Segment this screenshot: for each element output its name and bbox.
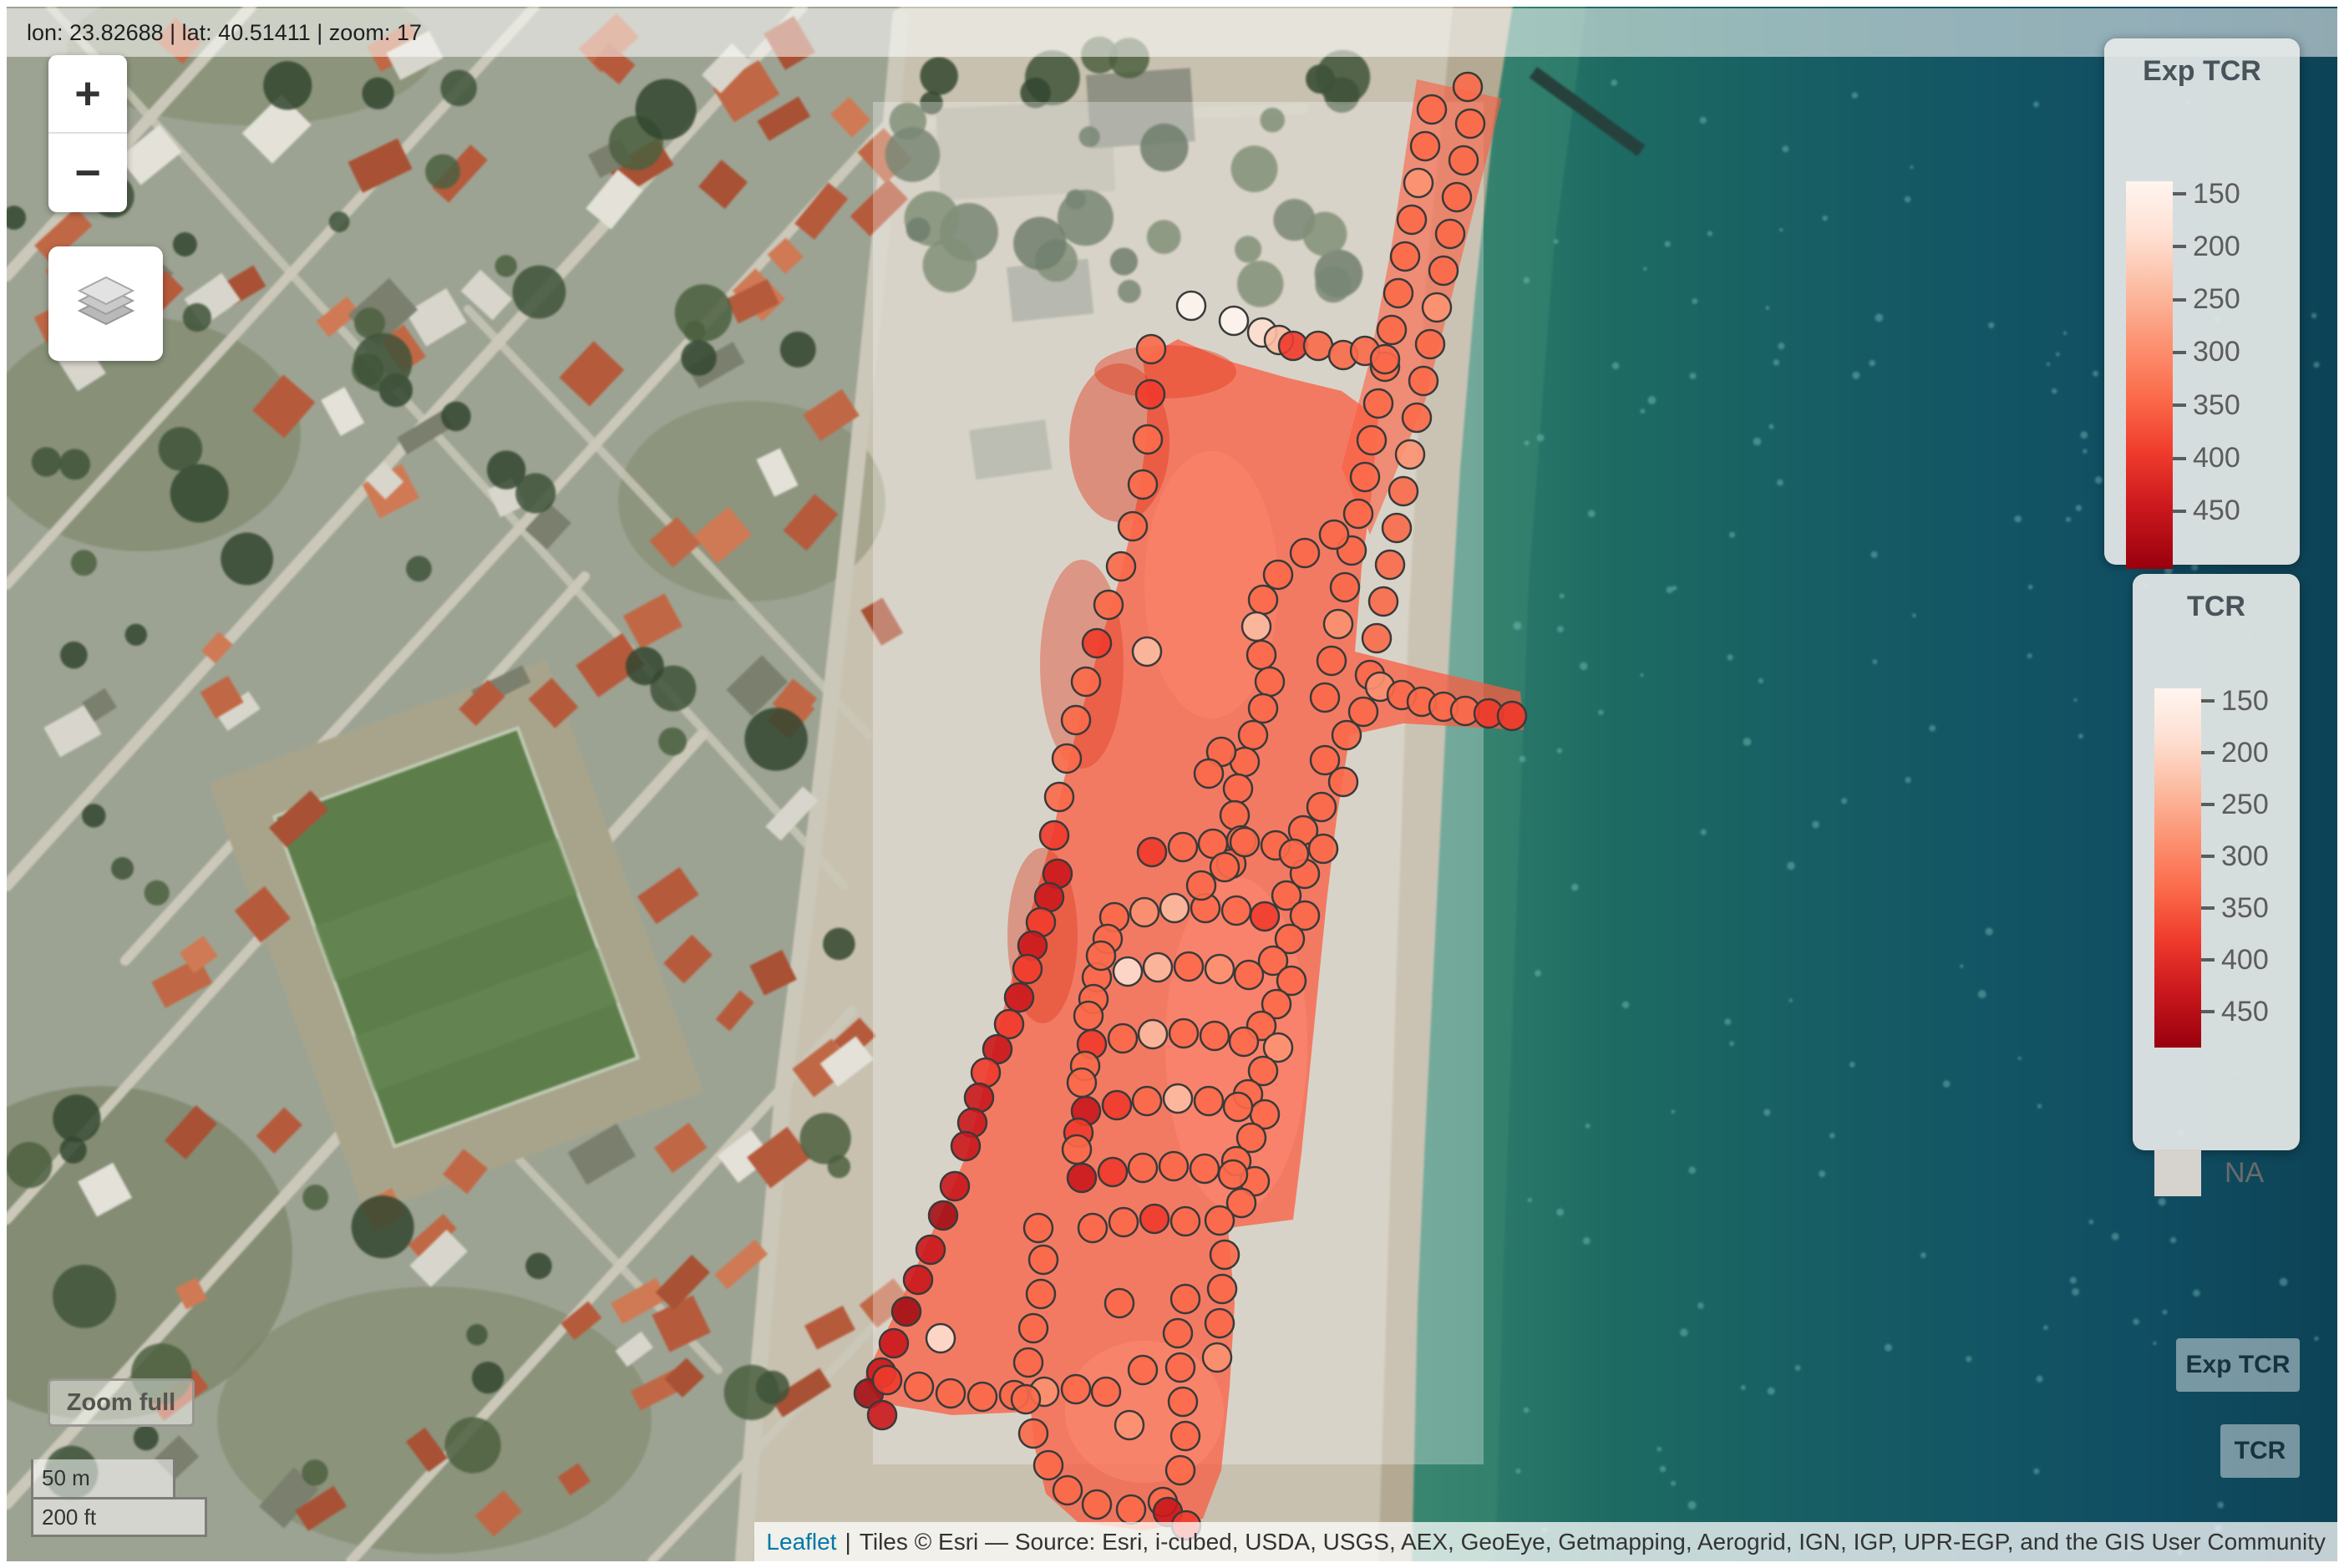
data-point-marker[interactable] [1171, 1207, 1200, 1236]
attribution-separator: | [845, 1529, 851, 1555]
data-point-marker[interactable] [1062, 706, 1090, 734]
data-point-marker[interactable] [1062, 1375, 1090, 1403]
data-point-marker[interactable] [1280, 840, 1308, 868]
data-point-marker[interactable] [1249, 586, 1277, 614]
data-point-marker[interactable] [1103, 1091, 1131, 1119]
data-point-marker[interactable] [1138, 838, 1166, 866]
data-point-marker[interactable] [1087, 941, 1115, 970]
data-point-marker[interactable] [1139, 1020, 1167, 1048]
data-point-marker[interactable] [1027, 1280, 1055, 1308]
data-point-marker[interactable] [1195, 759, 1223, 788]
data-point-marker[interactable] [1013, 955, 1042, 983]
data-point-marker[interactable] [1092, 1378, 1120, 1406]
data-point-marker[interactable] [1222, 896, 1251, 925]
data-point-marker[interactable] [904, 1266, 932, 1294]
na-color-swatch [2154, 1149, 2201, 1196]
data-point-marker[interactable] [1404, 169, 1433, 197]
data-point-marker[interactable] [1205, 1309, 1234, 1337]
data-point-marker[interactable] [1362, 624, 1391, 652]
data-point-marker[interactable] [1166, 1456, 1195, 1484]
data-point-marker[interactable] [1114, 957, 1142, 986]
data-point-marker[interactable] [1109, 1208, 1138, 1236]
data-point-marker[interactable] [1389, 477, 1418, 505]
data-point-marker[interactable] [1177, 292, 1205, 320]
legend-exp-tcr: Exp TCR 150200250300350400450 [2104, 38, 2300, 565]
data-point-marker[interactable] [941, 1172, 969, 1200]
data-point-marker[interactable] [1068, 1164, 1096, 1192]
data-point-marker[interactable] [1210, 853, 1239, 881]
data-point-marker[interactable] [1208, 1275, 1236, 1303]
data-point-marker[interactable] [1133, 637, 1161, 666]
data-point-marker[interactable] [1171, 1422, 1200, 1450]
data-point-marker[interactable] [1134, 425, 1162, 454]
data-point-marker[interactable] [1317, 647, 1346, 675]
data-point-marker[interactable] [1371, 345, 1399, 373]
data-point-marker[interactable] [1239, 721, 1267, 749]
data-point-marker[interactable] [1200, 1022, 1229, 1050]
data-point-marker[interactable] [1203, 1343, 1231, 1372]
data-point-marker[interactable] [1256, 667, 1284, 696]
legend-title: Exp TCR [2104, 55, 2300, 88]
zoom-control: + − [48, 55, 127, 212]
data-point-marker[interactable] [892, 1297, 921, 1326]
data-point-marker[interactable] [1034, 1451, 1063, 1479]
data-point-marker[interactable] [1190, 1154, 1219, 1183]
data-point-marker[interactable] [1072, 667, 1100, 696]
data-point-marker[interactable] [880, 1329, 908, 1357]
zoom-in-button[interactable]: + [48, 55, 127, 134]
data-point-marker[interactable] [1159, 1152, 1188, 1180]
data-point-marker[interactable] [1014, 1348, 1043, 1377]
legend-tcr: TCR 150200250300350400450 NA [2133, 574, 2300, 1150]
data-point-marker[interactable] [951, 1132, 980, 1160]
data-point-marker[interactable] [1129, 1154, 1157, 1182]
data-point-marker[interactable] [1083, 629, 1111, 657]
data-point-marker[interactable] [1344, 500, 1372, 528]
zoom-out-button[interactable]: − [48, 134, 127, 212]
data-point-marker[interactable] [868, 1401, 896, 1429]
data-point-marker[interactable] [1119, 512, 1147, 540]
data-point-marker[interactable] [1129, 1356, 1157, 1384]
data-point-marker[interactable] [1418, 95, 1446, 124]
figure-frame: lon: 23.82688 | lat: 40.51411 | zoom: 17… [0, 0, 2344, 1568]
data-point-marker[interactable] [1329, 768, 1357, 796]
data-point-marker[interactable] [1224, 774, 1252, 803]
data-point-marker[interactable] [1053, 1476, 1082, 1505]
data-point-marker[interactable] [1078, 1214, 1107, 1242]
data-point-marker[interactable] [1454, 73, 1482, 101]
data-point-marker[interactable] [1164, 1319, 1192, 1347]
data-point-marker[interactable] [1398, 206, 1426, 234]
layer-toggle-exp-tcr[interactable]: Exp TCR [2176, 1338, 2300, 1392]
data-point-marker[interactable] [1115, 1411, 1144, 1439]
data-point-marker[interactable] [1166, 1353, 1195, 1382]
data-point-marker[interactable] [1364, 389, 1393, 418]
data-point-marker[interactable] [972, 1058, 1000, 1087]
data-point-marker[interactable] [1105, 1289, 1134, 1317]
data-point-marker[interactable] [1012, 1385, 1040, 1413]
layers-icon [73, 274, 140, 334]
data-point-marker[interactable] [1195, 1087, 1223, 1115]
data-point-marker[interactable] [1109, 1024, 1137, 1053]
data-point-marker[interactable] [1307, 793, 1336, 821]
data-point-marker[interactable] [1230, 828, 1259, 856]
data-point-marker[interactable] [1423, 293, 1451, 322]
data-point-marker[interactable] [1098, 1158, 1127, 1186]
data-point-marker[interactable] [1409, 367, 1438, 395]
layer-toggle-label: TCR [2235, 1437, 2286, 1465]
data-point-marker[interactable] [1230, 1028, 1258, 1056]
data-point-marker[interactable] [965, 1083, 993, 1112]
data-point-marker[interactable] [1416, 330, 1444, 358]
data-point-marker[interactable] [1053, 744, 1081, 773]
zoom-full-label: Zoom full [67, 1389, 175, 1417]
data-point-marker[interactable] [1160, 894, 1189, 922]
scale-imperial-label: 200 ft [42, 1505, 96, 1530]
coordinate-readout: lon: 23.82688 | lat: 40.51411 | zoom: 17 [7, 8, 2337, 57]
data-point-marker[interactable] [1251, 902, 1279, 931]
plus-icon: + [74, 68, 101, 119]
data-point-marker[interactable] [1242, 612, 1271, 641]
color-gradient-bar [2126, 181, 2173, 569]
data-point-marker[interactable] [1376, 551, 1404, 579]
data-point-marker[interactable] [1357, 426, 1386, 454]
legend-tick-labels: 150200250300350400450 [2173, 181, 2281, 569]
scale-metric-label: 50 m [42, 1465, 90, 1491]
data-point-marker[interactable] [1396, 440, 1424, 469]
data-point-marker[interactable] [1169, 833, 1197, 861]
layer-toggle-tcr[interactable]: TCR [2220, 1424, 2300, 1478]
data-point-marker[interactable] [968, 1383, 997, 1411]
data-point-marker[interactable] [1443, 183, 1471, 211]
data-point-marker[interactable] [1205, 955, 1234, 983]
data-point-marker[interactable] [1377, 316, 1406, 344]
data-point-marker[interactable] [1164, 1084, 1192, 1113]
data-point-marker[interactable] [1107, 552, 1135, 581]
data-point-marker[interactable] [1117, 1495, 1145, 1524]
data-point-marker[interactable] [929, 1201, 957, 1230]
data-point-marker[interactable] [1171, 1285, 1200, 1313]
data-point-marker[interactable] [1220, 801, 1249, 830]
data-point-marker[interactable] [1324, 610, 1352, 638]
zoom-full-button[interactable]: Zoom full [48, 1378, 195, 1427]
minus-icon: − [74, 147, 101, 199]
data-point-marker[interactable] [1309, 835, 1337, 863]
attribution-bar: Leaflet | Tiles © Esri — Source: Esri, i… [754, 1522, 2337, 1561]
data-point-marker[interactable] [1403, 403, 1431, 432]
data-point-marker[interactable] [1311, 683, 1339, 712]
data-point-marker[interactable] [1320, 520, 1348, 549]
data-point-marker[interactable] [1219, 1160, 1247, 1189]
data-point-marker[interactable] [1210, 1241, 1239, 1269]
data-point-marker[interactable] [1369, 587, 1398, 616]
data-point-marker[interactable] [1083, 1490, 1111, 1519]
scale-metric: 50 m [31, 1459, 175, 1499]
data-point-marker[interactable] [1436, 220, 1464, 248]
data-point-marker[interactable] [1005, 983, 1033, 1012]
data-point-marker[interactable] [1169, 1388, 1197, 1416]
data-point-marker[interactable] [1224, 1093, 1252, 1121]
data-point-marker[interactable] [1391, 242, 1419, 271]
data-point-marker[interactable] [1068, 1068, 1096, 1097]
data-point-marker[interactable] [1140, 1205, 1169, 1233]
data-point-marker[interactable] [916, 1236, 945, 1264]
data-point-marker[interactable] [1411, 132, 1439, 160]
data-point-marker[interactable] [873, 1366, 901, 1394]
data-point-marker[interactable] [1429, 256, 1458, 285]
attribution-text: Tiles © Esri — Source: Esri, i-cubed, US… [860, 1529, 2326, 1555]
color-gradient-bar [2154, 688, 2201, 1048]
data-point-marker[interactable] [1187, 871, 1215, 900]
data-point-marker[interactable] [1094, 591, 1123, 619]
data-point-marker[interactable] [1029, 1246, 1058, 1274]
coordinate-text: lon: 23.82688 | lat: 40.51411 | zoom: 17 [27, 20, 422, 46]
data-point-marker[interactable] [1175, 952, 1203, 981]
data-point-marker[interactable] [1331, 573, 1359, 601]
data-point-marker[interactable] [1130, 898, 1159, 926]
data-point-marker[interactable] [1351, 463, 1379, 491]
data-point-marker[interactable] [1045, 783, 1073, 811]
data-point-marker[interactable] [1063, 1135, 1091, 1164]
data-point-marker[interactable] [905, 1373, 933, 1401]
data-point-marker[interactable] [1264, 561, 1292, 589]
layer-toggle-label: Exp TCR [2185, 1351, 2290, 1379]
data-point-marker[interactable] [1019, 1314, 1048, 1342]
data-point-marker[interactable] [1205, 1206, 1234, 1235]
data-point-marker[interactable] [1383, 514, 1411, 542]
data-point-marker[interactable] [1024, 1214, 1053, 1242]
data-point-marker[interactable] [1129, 470, 1157, 499]
data-point-marker[interactable] [1074, 1002, 1103, 1030]
data-point-marker[interactable] [1137, 335, 1165, 363]
data-point-marker[interactable] [1136, 380, 1164, 408]
na-label: NA [2225, 1157, 2264, 1190]
legend-tick-labels: 150200250300350400450 [2201, 688, 2310, 1048]
data-point-marker[interactable] [1332, 721, 1361, 749]
data-point-marker[interactable] [1249, 694, 1277, 723]
data-point-marker[interactable] [1449, 146, 1478, 175]
legend-na-entry: NA [2154, 1149, 2264, 1196]
data-point-marker[interactable] [1019, 1419, 1048, 1448]
data-point-marker[interactable] [1220, 307, 1248, 335]
leaflet-map[interactable]: lon: 23.82688 | lat: 40.51411 | zoom: 17… [7, 7, 2337, 1561]
data-point-marker[interactable] [926, 1324, 955, 1352]
scale-imperial: 200 ft [31, 1497, 207, 1537]
data-point-marker[interactable] [1169, 1019, 1198, 1048]
data-point-marker[interactable] [1456, 109, 1484, 138]
data-point-marker[interactable] [1247, 641, 1276, 669]
layers-control-button[interactable] [48, 246, 163, 361]
data-point-marker[interactable] [1235, 961, 1263, 989]
data-point-marker[interactable] [936, 1379, 965, 1408]
legend-title: TCR [2133, 591, 2300, 623]
data-point-marker[interactable] [1133, 1087, 1161, 1115]
data-point-marker[interactable] [1384, 279, 1413, 307]
data-point-marker[interactable] [1144, 953, 1172, 982]
data-point-marker[interactable] [1040, 821, 1068, 850]
scale-control: 50 m 200 ft [31, 1459, 207, 1537]
data-point-marker[interactable] [1498, 702, 1526, 730]
data-point-marker[interactable] [1291, 539, 1319, 567]
leaflet-link[interactable]: Leaflet [766, 1529, 836, 1555]
